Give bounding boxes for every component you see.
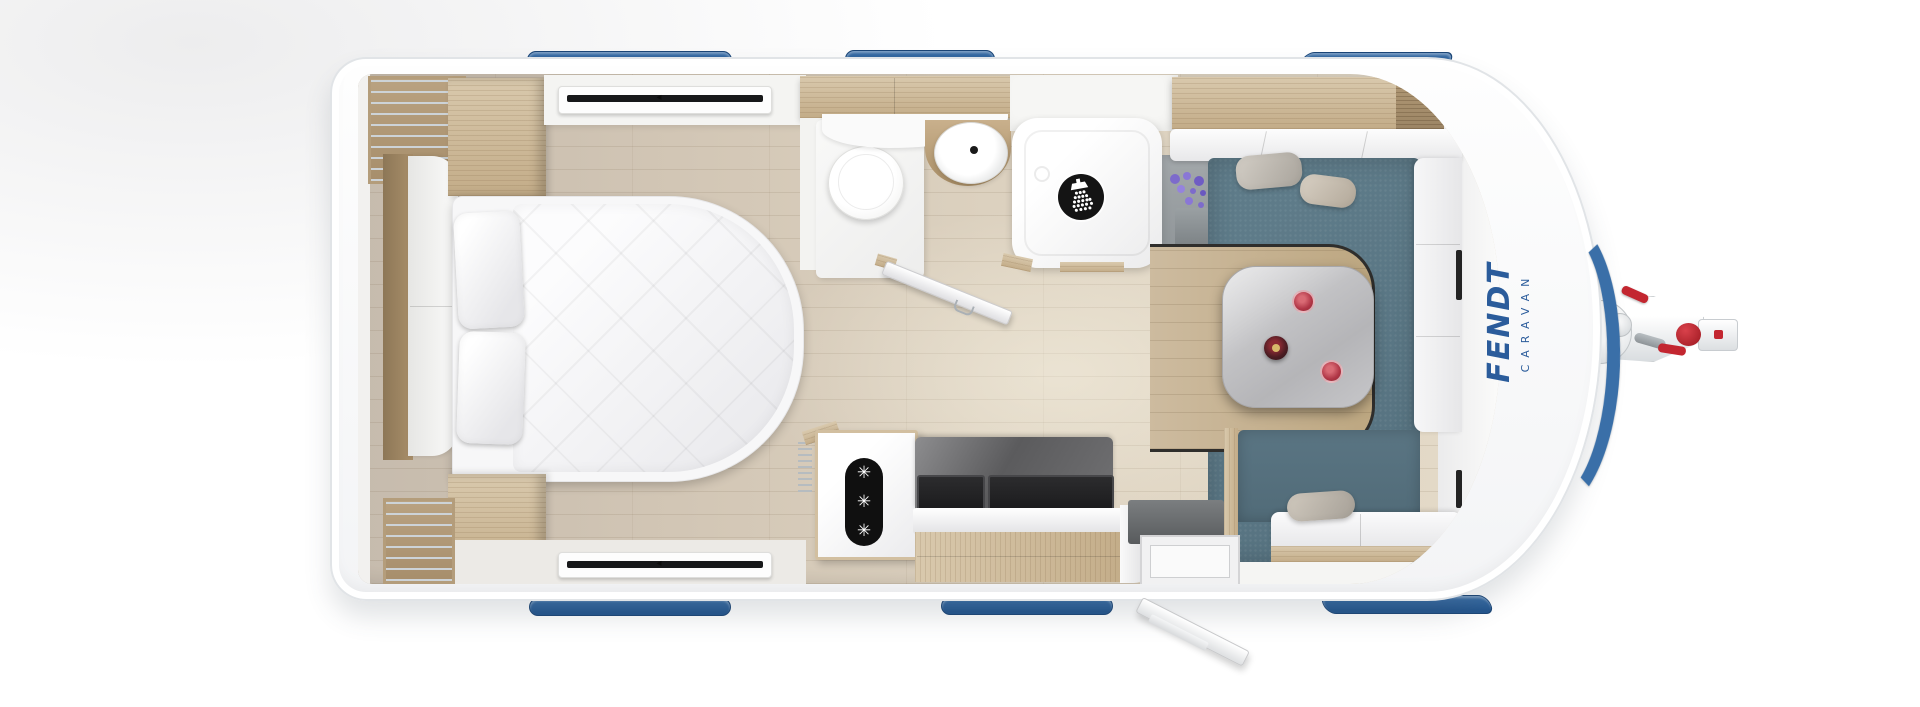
double-bed-duvet	[513, 204, 794, 472]
drawer-seam	[917, 556, 1127, 557]
window-latch-icon: ◂	[657, 93, 662, 103]
basin-faucet	[970, 146, 978, 154]
wall-bottom-front	[1208, 562, 1500, 584]
snowflake-glyph: ✳	[857, 463, 871, 483]
window-glass	[567, 561, 763, 568]
bed-pillow-top	[453, 210, 525, 329]
bottle-cap	[1272, 344, 1280, 352]
dinette-cushion-bottom	[1286, 490, 1356, 523]
shower-head-icon	[1058, 174, 1104, 220]
bench-seam	[1416, 244, 1460, 245]
brand-logo-primary: FENDT	[1482, 261, 1517, 382]
bed-pillow-bottom	[456, 331, 526, 445]
window-bedroom-bottom: ◂	[558, 552, 772, 578]
kitchen-drawers	[915, 532, 1129, 582]
fridge-vent	[798, 440, 812, 492]
bench-base-wood	[1271, 546, 1461, 562]
overhead-locker-dinette	[1172, 77, 1434, 129]
entry-door-open	[1135, 597, 1250, 667]
overhead-locker-bed-head	[448, 78, 546, 196]
snowflake-glyph: ✳	[857, 492, 871, 512]
wall-vent-slit	[1456, 470, 1462, 508]
locker-door-seam	[894, 78, 895, 116]
dresser-seam	[410, 306, 456, 307]
cabin-interior: ◂ ◂	[358, 74, 1500, 584]
dinette-table	[1222, 266, 1374, 408]
snowflake-glyph: ✳	[857, 521, 871, 541]
wine-bottle	[1264, 336, 1288, 360]
wall-vent-slit	[1456, 250, 1462, 300]
toilet-lid-seam	[838, 154, 894, 210]
caravan-floorplan: ◂ ◂	[0, 0, 1920, 707]
shower-drain	[1034, 166, 1050, 182]
coupling-knob-red	[1676, 323, 1701, 346]
window-bedroom-top: ◂	[558, 86, 772, 114]
hob-cover	[988, 475, 1114, 512]
overhead-locker-corner	[1396, 77, 1444, 129]
shower-sill-bottom	[1060, 262, 1124, 272]
brand-logo-secondary: CARAVAN	[1519, 272, 1532, 373]
bench-seam	[1416, 336, 1460, 337]
entry-step-inner	[1150, 545, 1230, 578]
bench-seam	[1360, 514, 1361, 546]
wine-glass	[1292, 290, 1315, 313]
sink-cover	[917, 475, 985, 512]
wardrobe-shelves-bottom	[383, 498, 455, 584]
brand-logo: FENDT CARAVAN	[1485, 247, 1529, 397]
coupling-pin-red	[1714, 330, 1723, 339]
wine-glass	[1320, 360, 1343, 383]
window-latch-icon: ◂	[657, 559, 662, 569]
dinette-cushion-gray	[1235, 151, 1304, 191]
entry-step	[1140, 535, 1240, 584]
window-glass	[567, 95, 763, 102]
kitchen-counter-edge	[913, 508, 1147, 534]
freezer-snowflakes-icon: ✳ ✳ ✳	[845, 458, 883, 546]
houseplant-flowers	[1170, 174, 1180, 184]
bench-front	[1414, 158, 1462, 432]
overhead-locker-bathroom	[800, 76, 1034, 118]
bench-backrest-top	[1170, 129, 1462, 161]
